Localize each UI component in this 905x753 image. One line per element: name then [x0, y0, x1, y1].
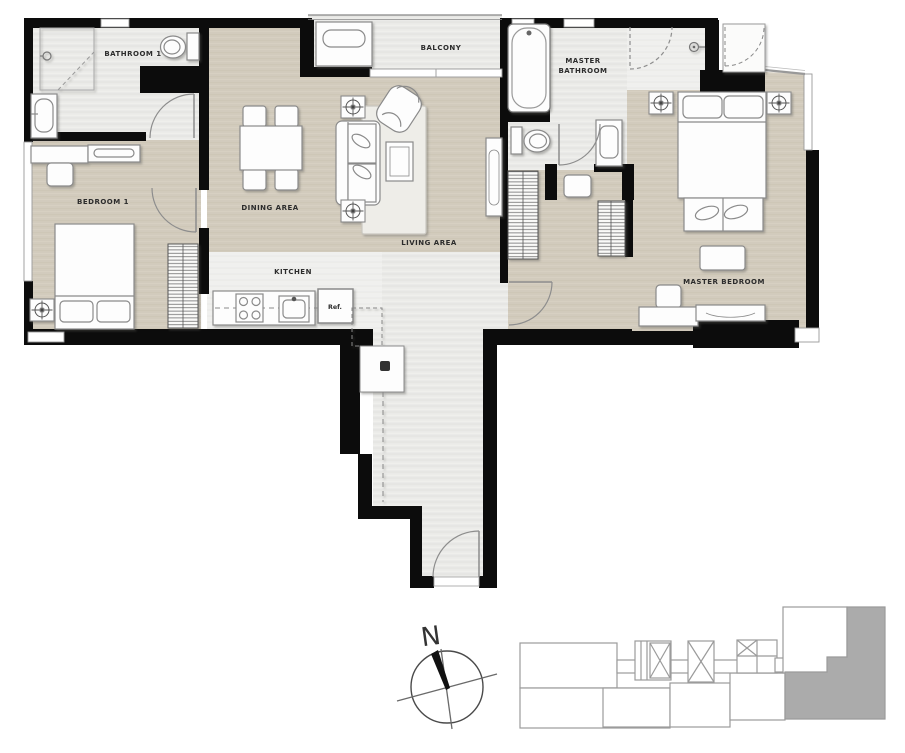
- key-plan: [520, 607, 885, 728]
- master-bed: [678, 92, 766, 198]
- master-bedroom-floor-corner: [765, 72, 806, 90]
- ac-condenser-unit: [316, 22, 372, 66]
- dressing-stool: [564, 175, 591, 197]
- keyplan-block: [520, 643, 617, 688]
- bedroom1-wardrobe: [168, 244, 198, 328]
- master-nightstand-lamp: [649, 92, 673, 114]
- keyplan-core-1: [635, 641, 671, 680]
- north-label: N: [419, 621, 442, 653]
- tv-console-living: [486, 138, 502, 216]
- vent-window: [101, 19, 129, 27]
- label-living-area: LIVING AREA: [401, 239, 457, 247]
- dressing-wardrobe-left: [508, 171, 538, 259]
- master-bedroom-bottom-window: [795, 328, 819, 342]
- bathroom1-vanity: [31, 94, 57, 138]
- label-kitchen: KITCHEN: [274, 268, 312, 276]
- tv-console-master: [696, 305, 765, 321]
- entry-hall-floor: [382, 252, 508, 332]
- vent-window: [564, 19, 594, 27]
- toilet: [161, 33, 200, 60]
- entry-threshold: [434, 577, 479, 586]
- master-bedroom-side-window: [804, 74, 812, 150]
- shower-floor: [627, 26, 706, 90]
- sofa: [336, 121, 380, 205]
- bedroom1-bed: [55, 224, 134, 329]
- label-bathroom-1: BATHROOM 1: [104, 50, 161, 58]
- corner-closet: [723, 24, 765, 72]
- bedroom1-nightstand-lamp: [30, 299, 54, 321]
- bedroom1-shelf: [88, 145, 140, 162]
- label-master-bathroom-1: MASTER: [565, 57, 600, 65]
- compass: N: [397, 621, 497, 729]
- dressing-wardrobe-right: [598, 201, 625, 256]
- bedroom1-bottom-window: [28, 332, 64, 342]
- living-lamp-table: [341, 96, 365, 118]
- floor-plan-canvas: BATHROOM 1 BALCONY MASTER BATHROOM BEDRO…: [0, 0, 905, 753]
- washer-symbol: [380, 361, 390, 371]
- label-bedroom-1: BEDROOM 1: [77, 198, 129, 206]
- label-refrigerator: Ref.: [328, 304, 342, 311]
- keyplan-block: [730, 673, 785, 720]
- label-master-bedroom: MASTER BEDROOM: [683, 278, 765, 286]
- kitchen-sink: [279, 296, 309, 322]
- keyplan-core-3: [737, 640, 777, 673]
- floor-plan-page: BATHROOM 1 BALCONY MASTER BATHROOM BEDRO…: [0, 0, 905, 753]
- keyplan-core-2: [688, 641, 714, 682]
- master-side-table: [700, 246, 745, 270]
- keyplan-block: [670, 683, 730, 727]
- bathtub: [508, 24, 550, 112]
- compass-needle: [431, 650, 450, 690]
- label-dining-area: DINING AREA: [241, 204, 298, 212]
- label-balcony: BALCONY: [421, 44, 462, 52]
- bed-bench: [684, 198, 763, 231]
- stove: [236, 294, 263, 322]
- label-master-bathroom-2: BATHROOM: [558, 67, 607, 75]
- entry-floor: [422, 504, 483, 580]
- master-nightstand-lamp: [767, 92, 791, 114]
- keyplan-block: [603, 688, 670, 727]
- living-lamp-table: [341, 200, 365, 222]
- coffee-table: [386, 142, 413, 181]
